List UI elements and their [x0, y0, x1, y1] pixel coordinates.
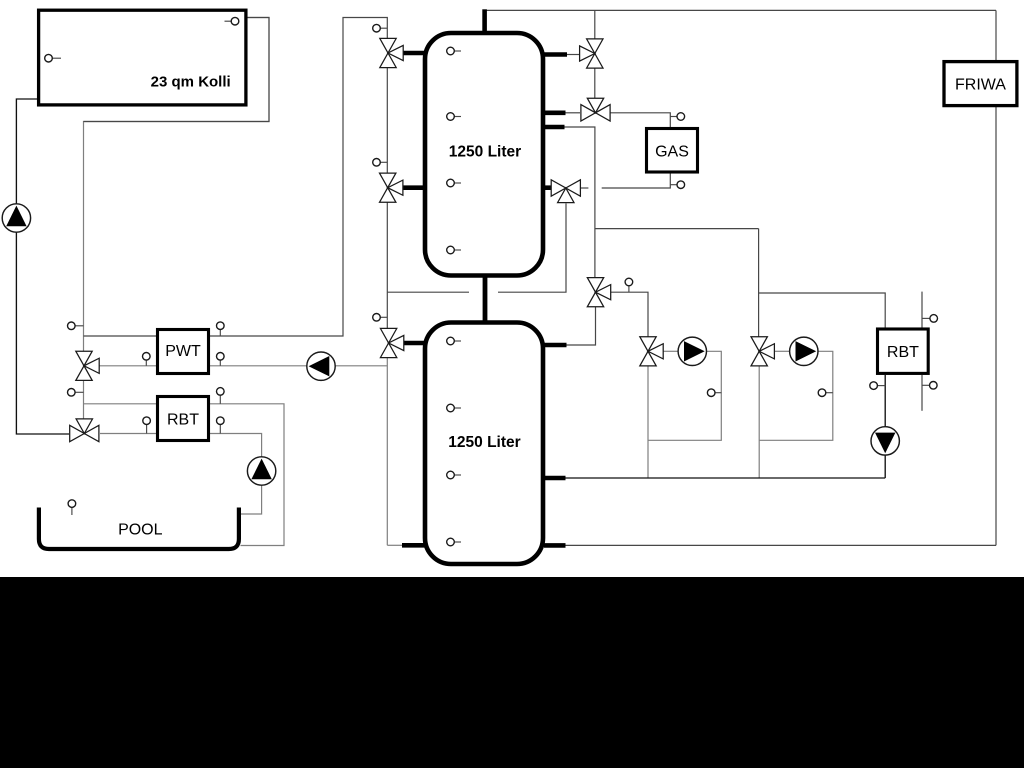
- svg-text:RBT: RBT: [887, 344, 919, 361]
- svg-text:RBT: RBT: [167, 411, 199, 428]
- svg-text:FRIWA: FRIWA: [955, 76, 1006, 93]
- svg-text:1250 Liter: 1250 Liter: [449, 143, 521, 160]
- svg-text:GAS: GAS: [655, 144, 689, 161]
- svg-text:POOL: POOL: [118, 522, 163, 539]
- svg-text:23 qm Kolli: 23 qm Kolli: [151, 73, 231, 90]
- svg-text:1250 Liter: 1250 Liter: [448, 434, 520, 451]
- svg-text:PWT: PWT: [165, 343, 201, 360]
